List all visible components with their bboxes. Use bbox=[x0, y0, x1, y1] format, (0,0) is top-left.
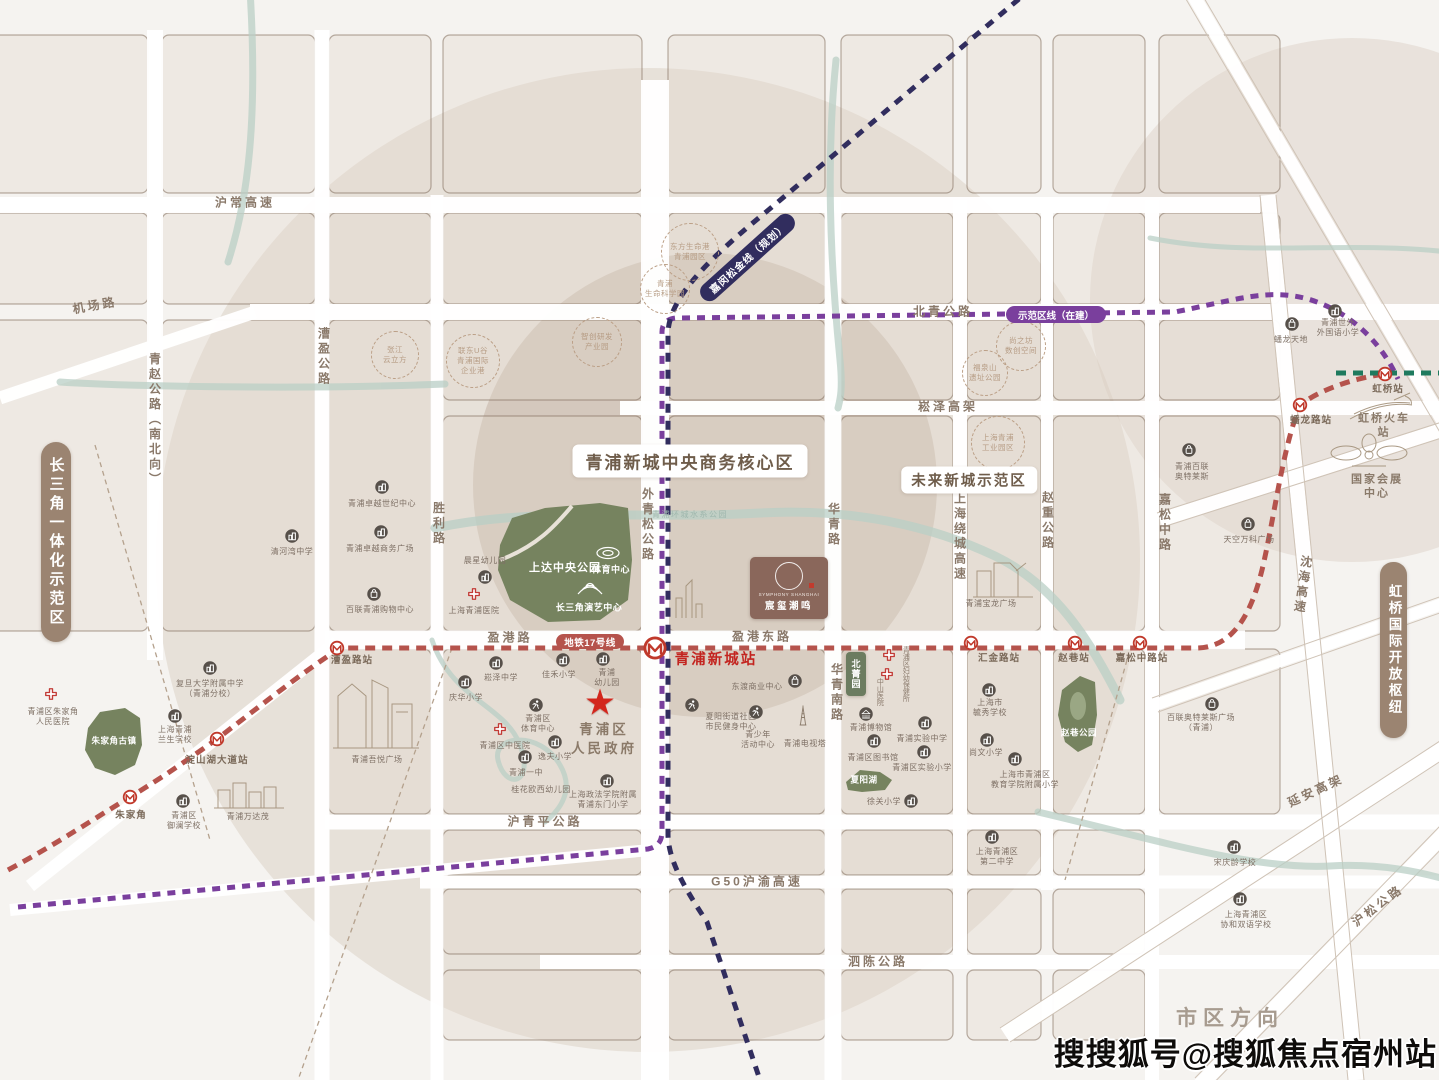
poi-bailian-outlets: 百联奥特莱斯广场 （青浦） bbox=[1167, 713, 1235, 733]
school-building-icon bbox=[489, 656, 504, 671]
poi-qpbl-outlets: 青浦百联 奥特莱斯 bbox=[1175, 462, 1209, 482]
ind-zhichuang: 智创研发 产业园 bbox=[572, 317, 622, 367]
poi-library: 青浦区图书馆 bbox=[848, 753, 899, 763]
school-building-icon bbox=[478, 570, 493, 585]
poi-dongdu: 东渡商业中心 bbox=[732, 682, 783, 692]
metro-station-icon bbox=[123, 790, 138, 805]
school-building-icon bbox=[985, 830, 1000, 845]
poi-qp-sports: 青浦区 体育中心 bbox=[521, 714, 555, 734]
road-husong: 沪松公路 bbox=[1350, 882, 1407, 930]
ind-shangzhifang: 尚之坊 数创空间 bbox=[996, 321, 1046, 371]
poi-songze-school: 崧泽中学 bbox=[484, 673, 518, 683]
st-zhujiajiao: 朱家角 bbox=[115, 810, 147, 822]
metro-station-icon bbox=[1378, 367, 1393, 382]
project-star: ★ bbox=[584, 680, 616, 725]
tv-tower-icon bbox=[796, 704, 811, 728]
poi-yizhong: 青浦一中 bbox=[509, 768, 543, 778]
park-yanyi: 长三角演艺中心 bbox=[556, 602, 623, 613]
poi-yulan: 青浦区 御澜学校 bbox=[167, 811, 201, 831]
poi-jiahe: 佳禾小学 bbox=[542, 670, 576, 680]
road-g50: G50沪渝高速 bbox=[711, 875, 803, 890]
st-panlonglu: 蟠龙路站 bbox=[1290, 415, 1332, 427]
poi-museum: 青浦博物馆 bbox=[850, 723, 893, 733]
poi-qp-hospital: 上海青浦医院 bbox=[449, 606, 500, 616]
park-xiayanghu: 夏阳湖 bbox=[850, 775, 877, 786]
school-building-icon bbox=[600, 774, 615, 789]
poi-fuyou: 青浦区妇幼保健所 bbox=[901, 646, 910, 702]
poi-zhuoyue-biz: 青浦卓越商务广场 bbox=[346, 544, 414, 554]
poi-wandamao: 青浦万达茂 bbox=[227, 812, 270, 822]
road-jichang: 机场路 bbox=[72, 295, 119, 318]
school-building-icon bbox=[556, 653, 571, 668]
school-building-icon bbox=[458, 675, 473, 690]
road-yinggang: 盈港路 bbox=[487, 631, 532, 646]
st-dianshanhu: 淀山湖大道站 bbox=[185, 755, 248, 767]
poi-panlong-tiandi: 蟠龙天地 bbox=[1274, 335, 1308, 345]
school-building-icon bbox=[867, 734, 882, 749]
hospital-cross-icon bbox=[880, 667, 895, 682]
road-beiqing: 北青公路 bbox=[913, 305, 973, 320]
school-building-icon bbox=[917, 745, 932, 760]
road-caoying: 漕盈公路 bbox=[316, 327, 331, 387]
ind-zhangjiang: 张江 云立方 bbox=[371, 331, 419, 379]
zone-label-future-city: 未来新城示范区 bbox=[901, 467, 1037, 494]
shopping-mall-icon bbox=[367, 587, 382, 602]
road-zhaozhong: 赵重公路 bbox=[1040, 491, 1055, 551]
poi-qp-kid: 青浦 幼儿园 bbox=[594, 668, 620, 688]
ind-fuquanshan: 福泉山 遗址公园 bbox=[962, 350, 1008, 396]
metro-station-icon bbox=[330, 641, 345, 656]
poi-lansheng: 上海青浦 兰生学校 bbox=[158, 725, 192, 745]
st-jiasongzhonglu: 嘉松中路站 bbox=[1116, 653, 1169, 665]
poi-zjj-hospital: 青浦区朱家角 人民医院 bbox=[28, 707, 79, 727]
road-qingzhao: 青赵公路（南北向） bbox=[147, 353, 162, 488]
school-building-icon bbox=[1328, 304, 1343, 319]
school-building-icon bbox=[203, 661, 218, 676]
poi-youth: 青少年 活动中心 bbox=[741, 730, 775, 750]
zone-label-cbd: 青浦新城中央商务核心区 bbox=[573, 445, 808, 478]
ind-liandong: 联东U谷 青浦国际 企业港 bbox=[446, 334, 500, 388]
school-building-icon bbox=[1008, 752, 1023, 767]
school-building-icon bbox=[980, 733, 995, 748]
transit-line-demo-capsule: 示范区线（在建） bbox=[1006, 306, 1106, 323]
watermark: 搜搜狐号@搜狐焦点宿州站 bbox=[1054, 1029, 1437, 1074]
gov: 青浦区 人民政府 bbox=[571, 721, 637, 759]
road-songze: 崧泽高架 bbox=[918, 400, 978, 415]
st-zhaoxiang: 赵巷站 bbox=[1058, 653, 1090, 665]
school-building-icon bbox=[374, 525, 389, 540]
project-logo-ring-icon bbox=[775, 562, 803, 590]
map-label-layer: 沪常高速机场路北青公路崧泽高架盈港路盈港东路沪青平公路G50沪渝高速泗陈公路延安… bbox=[0, 0, 1439, 1080]
poi-shiyan-middle: 青浦实验中学 bbox=[897, 734, 948, 744]
shopping-mall-icon bbox=[1241, 517, 1256, 532]
school-building-icon bbox=[1227, 840, 1242, 855]
poi-baolong: 青浦宝龙广场 bbox=[966, 599, 1017, 609]
project-logo: SYMPHONY SHANGHAI 宸玺潮鸣 bbox=[750, 557, 828, 619]
poi-niecc: 国家会展中心 bbox=[1346, 473, 1408, 501]
poi-bailian-qp: 百联青浦购物中心 bbox=[346, 605, 414, 615]
sports-icon bbox=[529, 698, 544, 713]
poi-shiyan-primary: 青浦区实验小学 bbox=[892, 763, 952, 773]
ind-industrial: 上海青浦 工业园区 bbox=[971, 416, 1025, 470]
poi-no2: 上海青浦区 第二中学 bbox=[976, 847, 1019, 867]
metro-station-icon bbox=[210, 732, 225, 747]
project-name-en: SYMPHONY SHANGHAI bbox=[750, 592, 828, 597]
zone-tag-hongqiao-hub: 虹桥国际开放枢纽 bbox=[1380, 562, 1407, 738]
hospital-cross-icon bbox=[467, 587, 482, 602]
metro-station-icon bbox=[643, 636, 667, 660]
school-building-icon bbox=[176, 794, 191, 809]
park-zhujiajiao: 朱家角古镇 bbox=[91, 736, 136, 747]
sports-icon bbox=[685, 698, 700, 713]
road-waiqingsong: 外青松公路 bbox=[640, 488, 655, 563]
park-shangda: 上达中央公园 bbox=[529, 562, 601, 576]
shopping-mall-icon bbox=[1182, 443, 1197, 458]
st-qingpuxincheng: 青浦新城站 bbox=[675, 651, 758, 669]
poi-xuguan: 徐关小学 bbox=[867, 797, 901, 807]
school-building-icon bbox=[285, 529, 300, 544]
school-building-icon bbox=[548, 735, 563, 750]
road-huqingping: 沪青平公路 bbox=[507, 815, 582, 830]
poi-shangwen: 尚文小学 bbox=[969, 748, 1003, 758]
metro-station-icon bbox=[1293, 398, 1308, 413]
shopping-mall-icon bbox=[1285, 317, 1300, 332]
poi-zhuoyue-century: 青浦卓越世纪中心 bbox=[348, 499, 416, 509]
school-building-icon bbox=[982, 683, 997, 698]
poi-xiehe: 上海青浦区 协和双语学校 bbox=[1221, 910, 1272, 930]
road-shenhai: 沈海高速 bbox=[1290, 554, 1313, 616]
road-yinggangdong: 盈港东路 bbox=[732, 630, 792, 645]
road-huaqing: 华青路 bbox=[826, 503, 841, 548]
poi-yuxiu: 上海市 毓秀学校 bbox=[973, 698, 1007, 718]
st-caoyinglu: 漕盈路站 bbox=[331, 655, 373, 667]
zone-tag-yangtze-delta: 长三角一体化示范区 bbox=[41, 442, 71, 642]
poi-zhengfa: 上海政法学院附属 青浦东门小学 bbox=[569, 790, 637, 810]
qingpu-new-city-map: 沪常高速机场路北青公路崧泽高架盈港路盈港东路沪青平公路G50沪渝高速泗陈公路延安… bbox=[0, 0, 1439, 1080]
ind-lifesci: 青浦 生命科学园 bbox=[640, 264, 690, 314]
st-huijinlu: 汇金路站 bbox=[978, 653, 1020, 665]
poi-qinghewan: 清河湾中学 bbox=[271, 547, 314, 557]
poi-qinghua: 庆华小学 bbox=[449, 693, 483, 703]
poi-yifu: 逸夫小学 bbox=[538, 752, 572, 762]
poi-guihua-kid: 桂花欧西幼儿园 bbox=[511, 785, 571, 795]
school-building-icon bbox=[518, 750, 533, 765]
museum-icon bbox=[859, 707, 874, 722]
hospital-cross-icon bbox=[882, 648, 897, 663]
school-building-icon bbox=[918, 716, 933, 731]
road-yanan: 延安高架 bbox=[1286, 772, 1347, 811]
hospital-cross-icon bbox=[493, 722, 508, 737]
sports-icon bbox=[749, 705, 764, 720]
poi-shiwai: 青浦世外 外国语小学 bbox=[1317, 318, 1360, 338]
transit-line17-capsule: 地铁17号线 bbox=[556, 634, 624, 649]
poi-zhongshan: 中山医院 bbox=[875, 678, 884, 706]
project-name-cn: 宸玺潮鸣 bbox=[750, 598, 828, 612]
zone-tag-beijing-park: 北菁园 bbox=[846, 652, 866, 696]
road-huaqingnan: 华青南路 bbox=[829, 663, 844, 723]
school-building-icon bbox=[904, 794, 919, 809]
school-building-icon bbox=[168, 709, 183, 724]
school-building-icon bbox=[1233, 892, 1248, 907]
ind-dongfang: 东方生命港 青浦园区 bbox=[661, 223, 719, 281]
poi-songqingling: 宋庆龄学校 bbox=[1214, 858, 1257, 868]
poi-edu-primary: 上海市青浦区 教育学院附属小学 bbox=[991, 770, 1059, 790]
poi-chenxing: 晨星幼儿园 bbox=[464, 556, 507, 566]
poi-fudanfz: 复旦大学附属中学 （青浦分校） bbox=[176, 679, 244, 699]
poi-wuyue: 青浦吾悦广场 bbox=[352, 755, 403, 765]
metro-station-icon bbox=[1068, 636, 1083, 651]
metro-station-icon bbox=[964, 636, 979, 651]
park-zhaoxiang: 赵巷公园 bbox=[1061, 728, 1097, 739]
road-jiasongzhong: 嘉松中路 bbox=[1157, 493, 1172, 553]
st-hongqiao: 虹桥站 bbox=[1372, 384, 1404, 396]
road-shengli: 胜利路 bbox=[431, 502, 446, 547]
poi-hongqiao-rail: 虹桥火车站 bbox=[1357, 412, 1412, 440]
project-logo-seal-icon bbox=[809, 583, 814, 588]
park-sports-center: 体育中心 bbox=[592, 564, 630, 575]
shopping-mall-icon bbox=[788, 674, 803, 689]
school-building-icon bbox=[596, 652, 611, 667]
shopping-mall-icon bbox=[1205, 697, 1220, 712]
water-park: 青浦环城水系公园 bbox=[652, 510, 728, 520]
hospital-cross-icon bbox=[44, 687, 59, 702]
road-huchang: 沪常高速 bbox=[215, 196, 275, 211]
road-raocheng: 上海绕城高速 bbox=[952, 492, 967, 582]
road-sichen: 泗陈公路 bbox=[848, 955, 908, 970]
poi-tiankong: 天空万科广场 bbox=[1224, 535, 1275, 545]
school-building-icon bbox=[375, 480, 390, 495]
metro-station-icon bbox=[1133, 636, 1148, 651]
poi-tvtower: 青浦电视塔 bbox=[784, 739, 827, 749]
